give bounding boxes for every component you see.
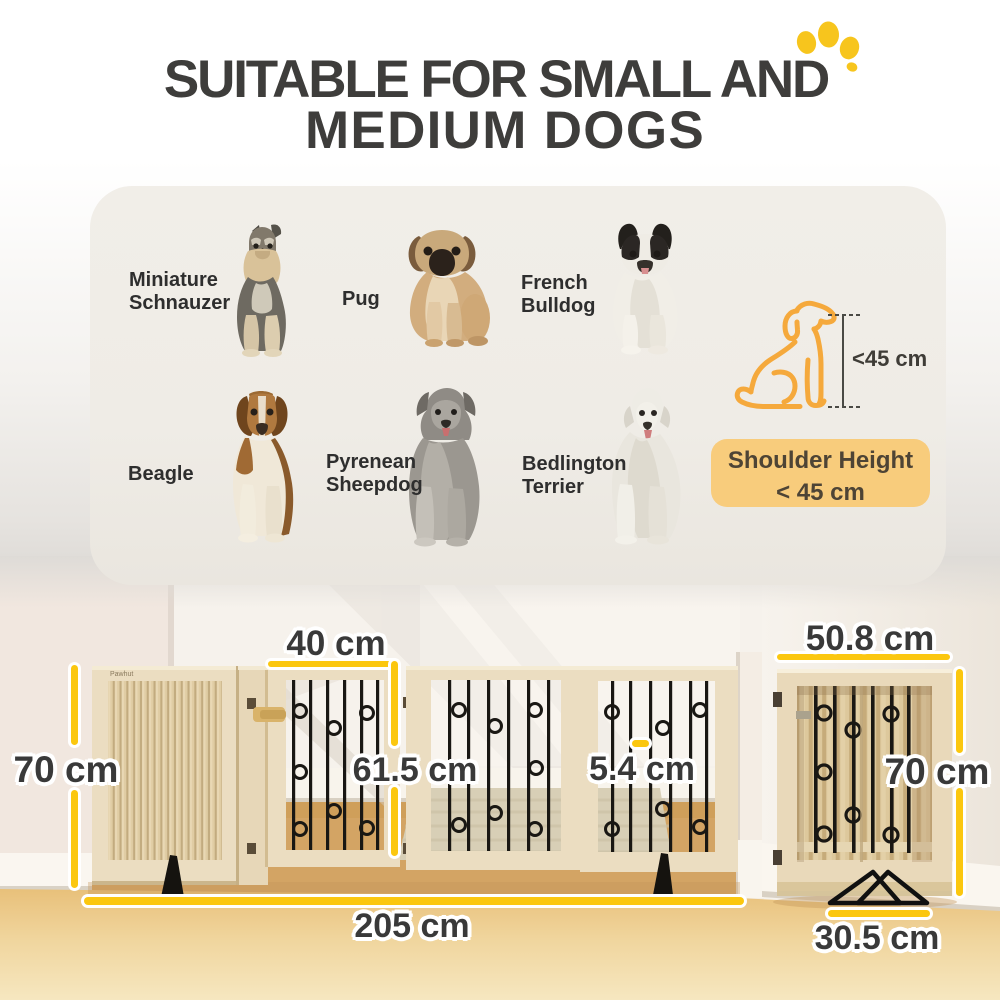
svg-text:<45 cm: <45 cm xyxy=(852,346,927,371)
svg-text:Pawhut: Pawhut xyxy=(110,671,133,678)
